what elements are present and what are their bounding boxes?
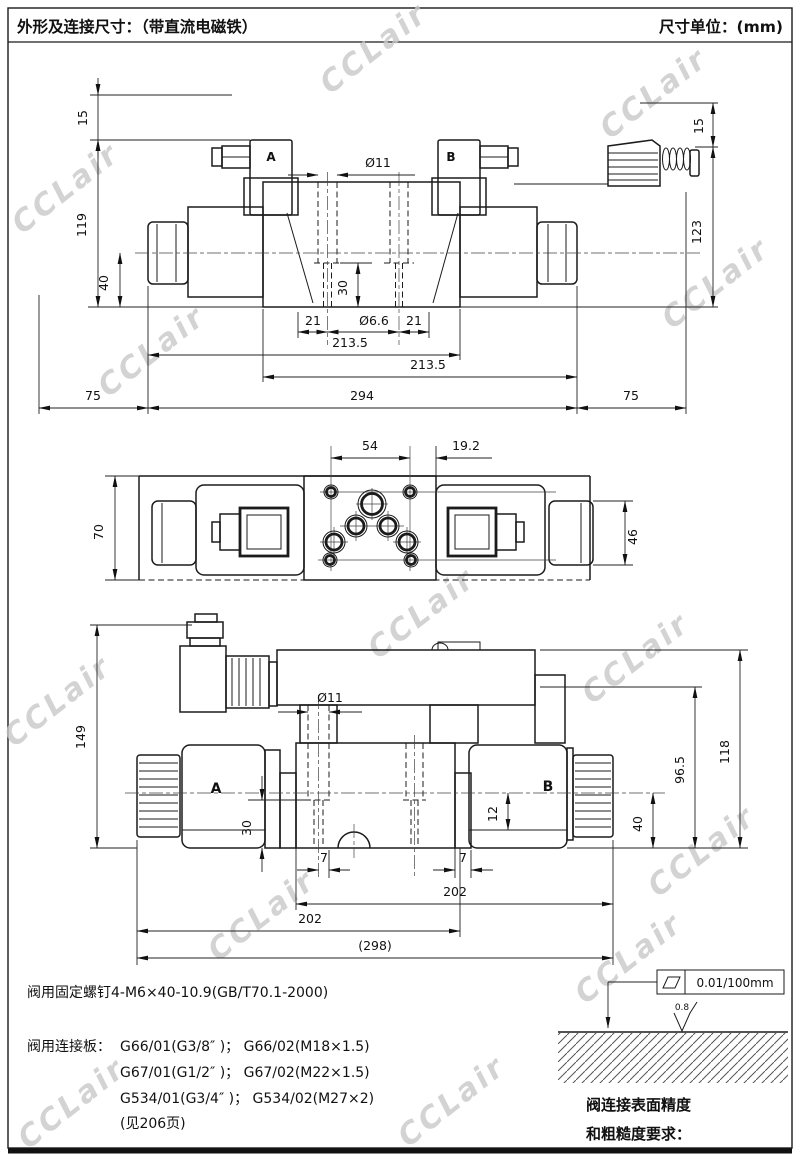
note-subplate-3: G534/01(G3/4″ )； G534/02(M27×2) bbox=[120, 1091, 374, 1107]
watermark-text: CCLair bbox=[641, 799, 762, 904]
side-view-hidden-holes bbox=[305, 705, 426, 848]
dim-965: 96.5 bbox=[672, 756, 687, 784]
note-subplate-2: G67/01(G1/2″ )； G67/02(M22×1.5) bbox=[120, 1065, 370, 1081]
cable-gland bbox=[514, 140, 699, 186]
watermark-text: CCLair bbox=[575, 606, 696, 711]
watermark-text: CCLair bbox=[655, 231, 776, 336]
watermark-text: CCLair bbox=[313, 0, 434, 101]
front-view-connector-a bbox=[212, 140, 298, 215]
side-view-body bbox=[137, 743, 613, 858]
dim-149: 149 bbox=[73, 725, 88, 749]
watermark-text: CCLair bbox=[0, 649, 119, 754]
flatness-value: 0.01/100mm bbox=[696, 976, 773, 990]
dim-21-right: 21 bbox=[406, 313, 422, 328]
dim-30: 30 bbox=[335, 280, 350, 296]
roughness-value: 0.8 bbox=[675, 1003, 690, 1013]
watermark-text: CCLair bbox=[11, 1051, 132, 1156]
watermark-text: CCLair bbox=[5, 136, 126, 241]
dim-118: 118 bbox=[717, 740, 732, 764]
dim-75-left: 75 bbox=[85, 388, 101, 403]
top-view-dimensions: 54 19.2 70 46 bbox=[91, 438, 640, 580]
note-subplate-1: G66/01(G3/8″ )； G66/02(M18×1.5) bbox=[120, 1039, 370, 1055]
dim-7-left: 7 bbox=[320, 850, 328, 865]
page-title: 外形及连接尺寸：（带直流电磁铁） bbox=[17, 17, 257, 36]
watermark-text: CCLair bbox=[391, 1049, 512, 1154]
unit-label: 尺寸单位：(mm) bbox=[659, 17, 783, 36]
dim-123: 123 bbox=[689, 220, 704, 244]
dim-119: 119 bbox=[74, 213, 89, 237]
dim-12: 12 bbox=[485, 806, 500, 822]
dim-7-right: 7 bbox=[459, 850, 467, 865]
note-subplate-label: 阀用连接板： bbox=[27, 1038, 111, 1055]
dim-2135-b: 213.5 bbox=[410, 357, 446, 372]
dim-298: (298) bbox=[358, 938, 392, 953]
dim-54: 54 bbox=[362, 438, 378, 453]
drawing-page: 外形及连接尺寸：（带直流电磁铁） 尺寸单位：(mm) CCLair CCLair… bbox=[0, 0, 800, 1160]
dim-30-side: 30 bbox=[239, 820, 254, 836]
surface-caption-2: 和粗糙度要求： bbox=[586, 1125, 691, 1143]
dim-15-right: 15 bbox=[691, 118, 706, 134]
top-view: 54 19.2 70 46 bbox=[91, 438, 640, 580]
note-subplate-4: (见206页) bbox=[120, 1116, 186, 1132]
port-b-label-side: B bbox=[543, 779, 554, 795]
dim-21-left: 21 bbox=[305, 313, 321, 328]
dim-192: 19.2 bbox=[452, 438, 480, 453]
dim-40: 40 bbox=[96, 275, 111, 291]
hatched-surface bbox=[558, 1033, 788, 1083]
front-view-connector-b bbox=[432, 140, 518, 215]
dim-15-left: 15 bbox=[75, 110, 90, 126]
dim-dia66: Ø6.6 bbox=[359, 313, 389, 328]
dim-dia11-side: Ø11 bbox=[317, 690, 343, 705]
dim-202-a: 202 bbox=[443, 884, 467, 899]
dim-294: 294 bbox=[350, 388, 374, 403]
dim-46: 46 bbox=[625, 529, 640, 545]
port-a-label-side: A bbox=[211, 781, 222, 797]
dim-202-b: 202 bbox=[298, 911, 322, 926]
mounting-ports bbox=[318, 446, 556, 571]
port-a-label: A bbox=[266, 150, 276, 164]
watermark-text: CCLair bbox=[568, 906, 689, 1011]
dim-40-side: 40 bbox=[630, 816, 645, 832]
dim-75-right: 75 bbox=[623, 388, 639, 403]
watermark-text: CCLair bbox=[91, 299, 212, 404]
dim-2135-a: 213.5 bbox=[332, 335, 368, 350]
dim-70: 70 bbox=[91, 524, 106, 540]
surface-caption-1: 阀连接表面精度 bbox=[586, 1096, 692, 1114]
front-view-body bbox=[148, 182, 577, 307]
dim-dia11: Ø11 bbox=[365, 155, 391, 170]
port-b-label: B bbox=[446, 150, 455, 164]
flatness-icon bbox=[663, 977, 680, 988]
note-fixing-screw: 阀用固定螺钉4-M6×40-10.9(GB/T70.1-2000) bbox=[27, 985, 328, 1001]
